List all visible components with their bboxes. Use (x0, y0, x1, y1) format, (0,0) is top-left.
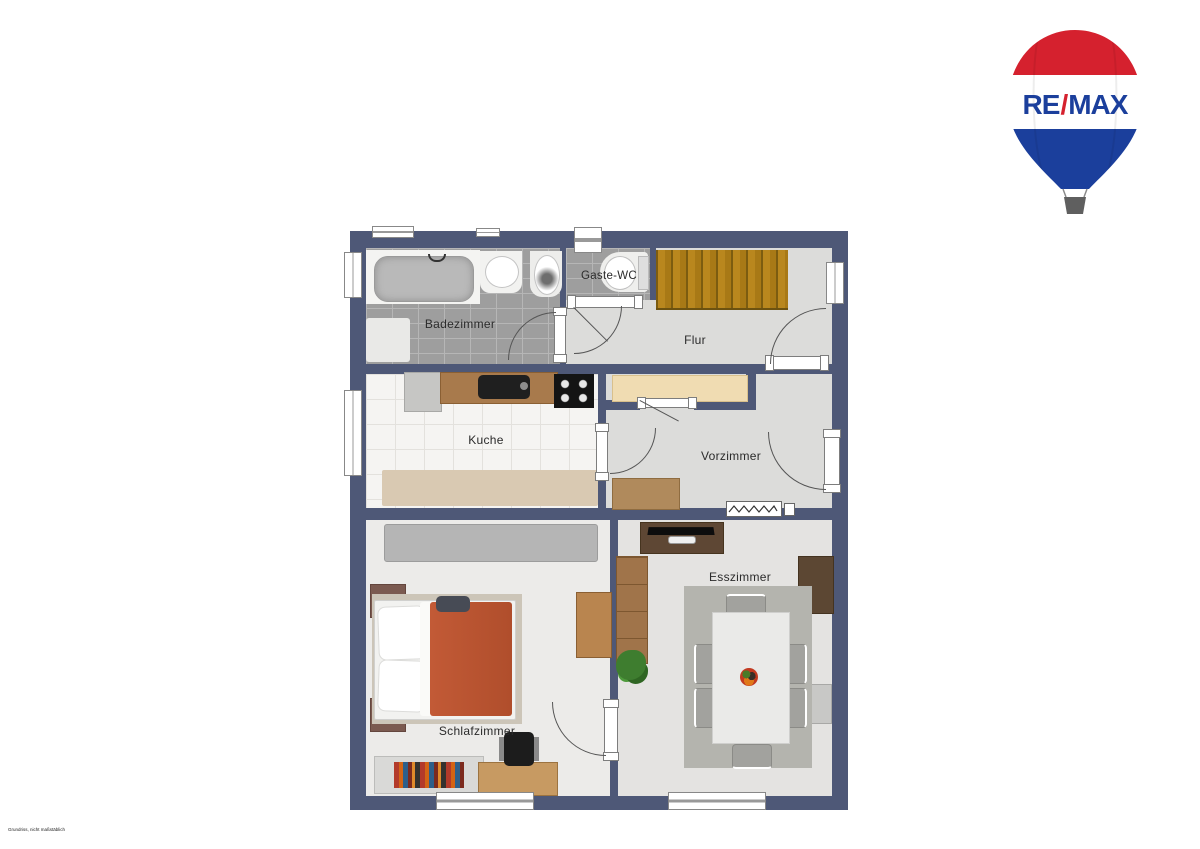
window (344, 252, 362, 298)
door-schlafzimmer (604, 700, 618, 760)
window (372, 226, 414, 238)
desk (478, 762, 558, 796)
dresser (612, 478, 680, 510)
balloon-basket (1064, 197, 1086, 214)
kitchen-faucet-icon (520, 382, 528, 390)
bidet-bowl (534, 255, 560, 295)
door-vorzimmer-exterior (824, 430, 840, 492)
bathtub (374, 256, 474, 302)
room-label-flur: Flur (684, 333, 706, 347)
room-label-esszimmer: Esszimmer (709, 570, 771, 584)
sink-basin (485, 256, 519, 288)
refrigerator (404, 372, 442, 412)
door-kueche-vorzimmer (596, 424, 608, 480)
desk (576, 592, 612, 658)
room-label-kueche: Kuche (468, 433, 504, 447)
bath-rug (366, 318, 410, 362)
chair-armrest (534, 737, 539, 761)
bed-blanket (430, 602, 512, 716)
vent (476, 228, 500, 237)
radiator (726, 501, 782, 517)
wardrobe (384, 524, 598, 562)
staircase (656, 250, 788, 310)
shelf (616, 556, 648, 664)
toilet-tank (638, 256, 649, 290)
chimney (574, 227, 602, 253)
books (394, 762, 464, 788)
tv-icon (647, 527, 714, 535)
room-label-schlafzimmer: Schlafzimmer (439, 724, 515, 738)
accent-pillow (436, 596, 470, 612)
remax-balloon-logo: RE/MAX (1000, 25, 1150, 220)
floor-plan-page: Badezimmer Gaste-WC Flur Kuche Vorzimmer… (0, 0, 1200, 849)
remax-wordmark: RE/MAX (1023, 89, 1129, 120)
window (344, 390, 362, 476)
window (826, 262, 844, 304)
radiator-valve (784, 503, 795, 516)
fruit-bowl (740, 668, 758, 686)
room-label-badezimmer: Badezimmer (425, 317, 495, 331)
disclaimer-text: Grundriss, nicht maßstäblich (8, 827, 65, 832)
chair-armrest (499, 737, 504, 761)
dining-chair (732, 744, 772, 769)
stove (554, 374, 594, 408)
room-label-vorzimmer: Vorzimmer (701, 449, 761, 463)
window (436, 792, 534, 810)
balloon-envelope (1000, 25, 1150, 220)
room-label-gaeste-wc: Gaste-WC (581, 270, 637, 282)
tv-stand (668, 536, 696, 544)
window (668, 792, 766, 810)
kitchen-rug (382, 470, 598, 506)
